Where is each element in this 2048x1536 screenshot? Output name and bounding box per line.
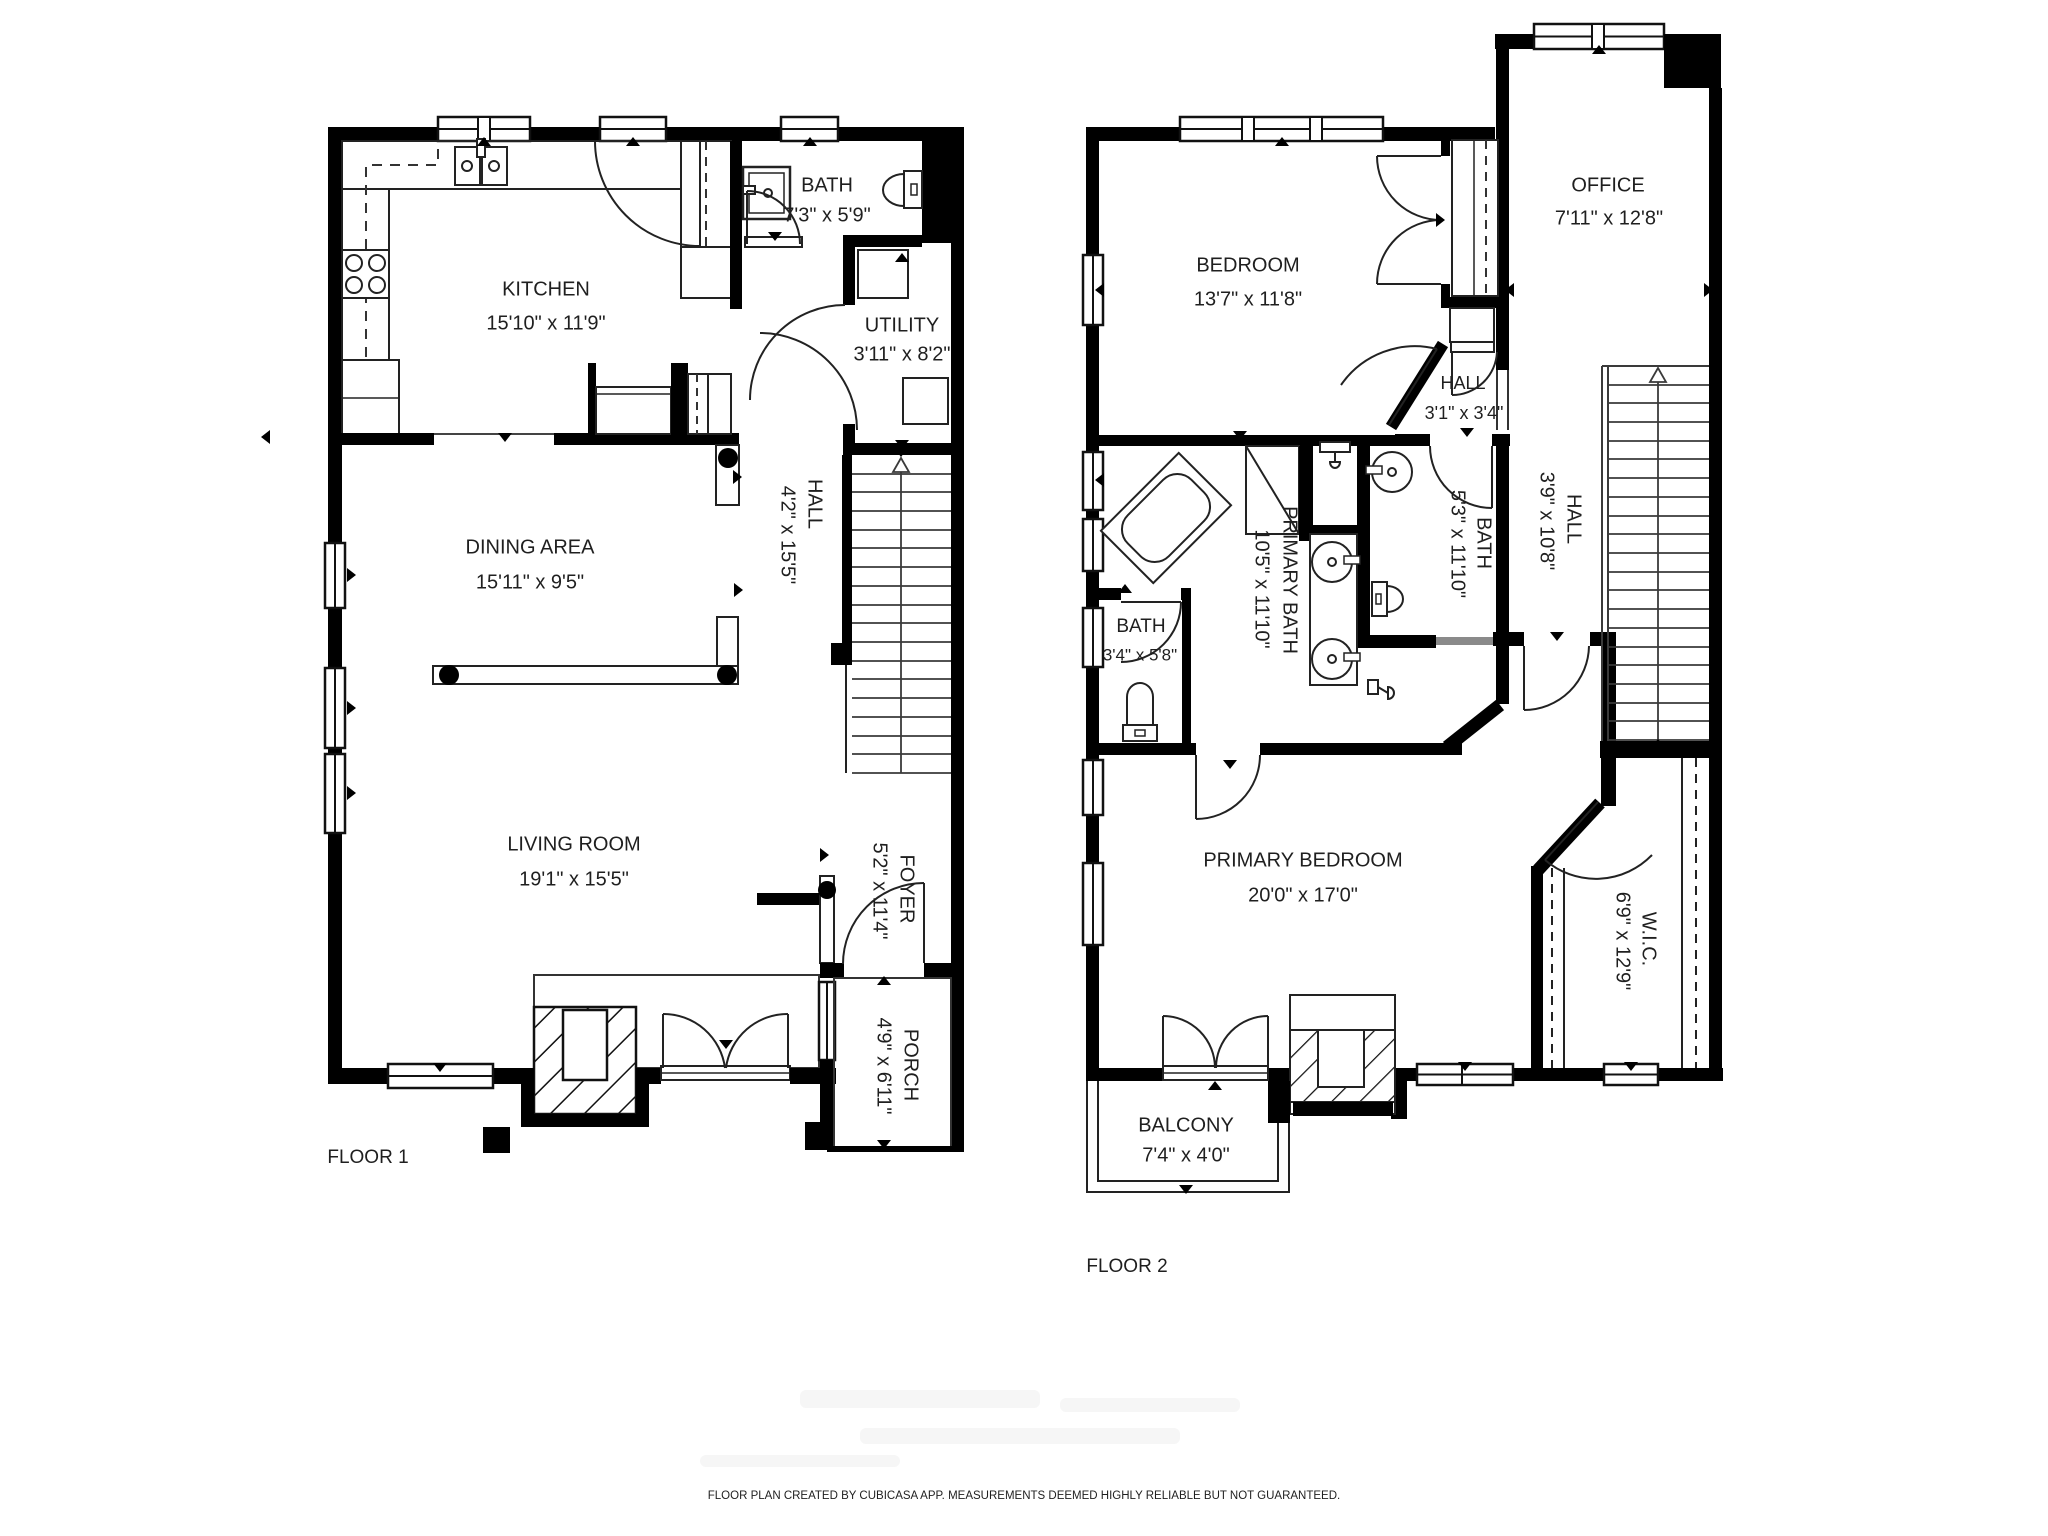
svg-text:UTILITY: UTILITY <box>865 314 939 336</box>
svg-text:W.I.C.: W.I.C. <box>1638 912 1660 966</box>
svg-text:5'2" x 11'4": 5'2" x 11'4" <box>869 842 891 939</box>
svg-text:3'4" x 5'8": 3'4" x 5'8" <box>1103 645 1177 664</box>
svg-text:3'1" x 3'4": 3'1" x 3'4" <box>1425 403 1504 423</box>
svg-text:FLOOR 2: FLOOR 2 <box>1086 1256 1167 1277</box>
svg-text:LIVING ROOM: LIVING ROOM <box>507 833 640 855</box>
svg-text:7'11" x 12'8": 7'11" x 12'8" <box>1555 207 1663 229</box>
svg-text:20'0" x 17'0": 20'0" x 17'0" <box>1248 884 1358 906</box>
svg-text:19'1" x 15'5": 19'1" x 15'5" <box>519 868 629 890</box>
svg-text:FLOOR PLAN CREATED BY CUBICASA: FLOOR PLAN CREATED BY CUBICASA APP. MEAS… <box>708 1490 1340 1502</box>
svg-text:FOYER: FOYER <box>896 855 918 924</box>
svg-text:15'10" x 11'9": 15'10" x 11'9" <box>486 312 605 334</box>
svg-text:13'7" x 11'8": 13'7" x 11'8" <box>1194 288 1302 310</box>
svg-text:PRIMARY BATH: PRIMARY BATH <box>1279 506 1301 654</box>
svg-text:HALL: HALL <box>1563 494 1585 544</box>
svg-text:10'5" x 11'10": 10'5" x 11'10" <box>1251 529 1273 648</box>
svg-text:BEDROOM: BEDROOM <box>1196 254 1299 276</box>
svg-text:HALL: HALL <box>804 479 826 529</box>
svg-text:FLOOR 1: FLOOR 1 <box>327 1147 408 1168</box>
svg-text:6'9" x 12'9": 6'9" x 12'9" <box>1612 892 1634 991</box>
svg-text:BATH: BATH <box>1116 616 1165 637</box>
svg-text:3'11" x 8'2": 3'11" x 8'2" <box>853 343 950 365</box>
svg-text:KITCHEN: KITCHEN <box>502 278 590 300</box>
svg-text:PRIMARY BEDROOM: PRIMARY BEDROOM <box>1203 849 1402 871</box>
svg-text:OFFICE: OFFICE <box>1571 174 1644 196</box>
svg-text:4'9" x 6'11": 4'9" x 6'11" <box>873 1017 895 1114</box>
svg-text:3'9" x 10'8": 3'9" x 10'8" <box>1536 472 1558 571</box>
svg-text:15'11" x 9'5": 15'11" x 9'5" <box>476 571 584 593</box>
svg-text:BATH: BATH <box>1473 517 1495 569</box>
svg-text:4'2" x 15'5": 4'2" x 15'5" <box>777 486 799 585</box>
svg-text:DINING AREA: DINING AREA <box>466 536 596 558</box>
svg-text:5'3" x 11'10": 5'3" x 11'10" <box>1447 490 1469 598</box>
svg-text:BALCONY: BALCONY <box>1138 1114 1234 1136</box>
svg-text:7'4" x 4'0": 7'4" x 4'0" <box>1142 1144 1229 1166</box>
svg-text:BATH: BATH <box>801 174 853 196</box>
svg-text:HALL: HALL <box>1440 373 1485 393</box>
svg-text:PORCH: PORCH <box>900 1029 922 1101</box>
